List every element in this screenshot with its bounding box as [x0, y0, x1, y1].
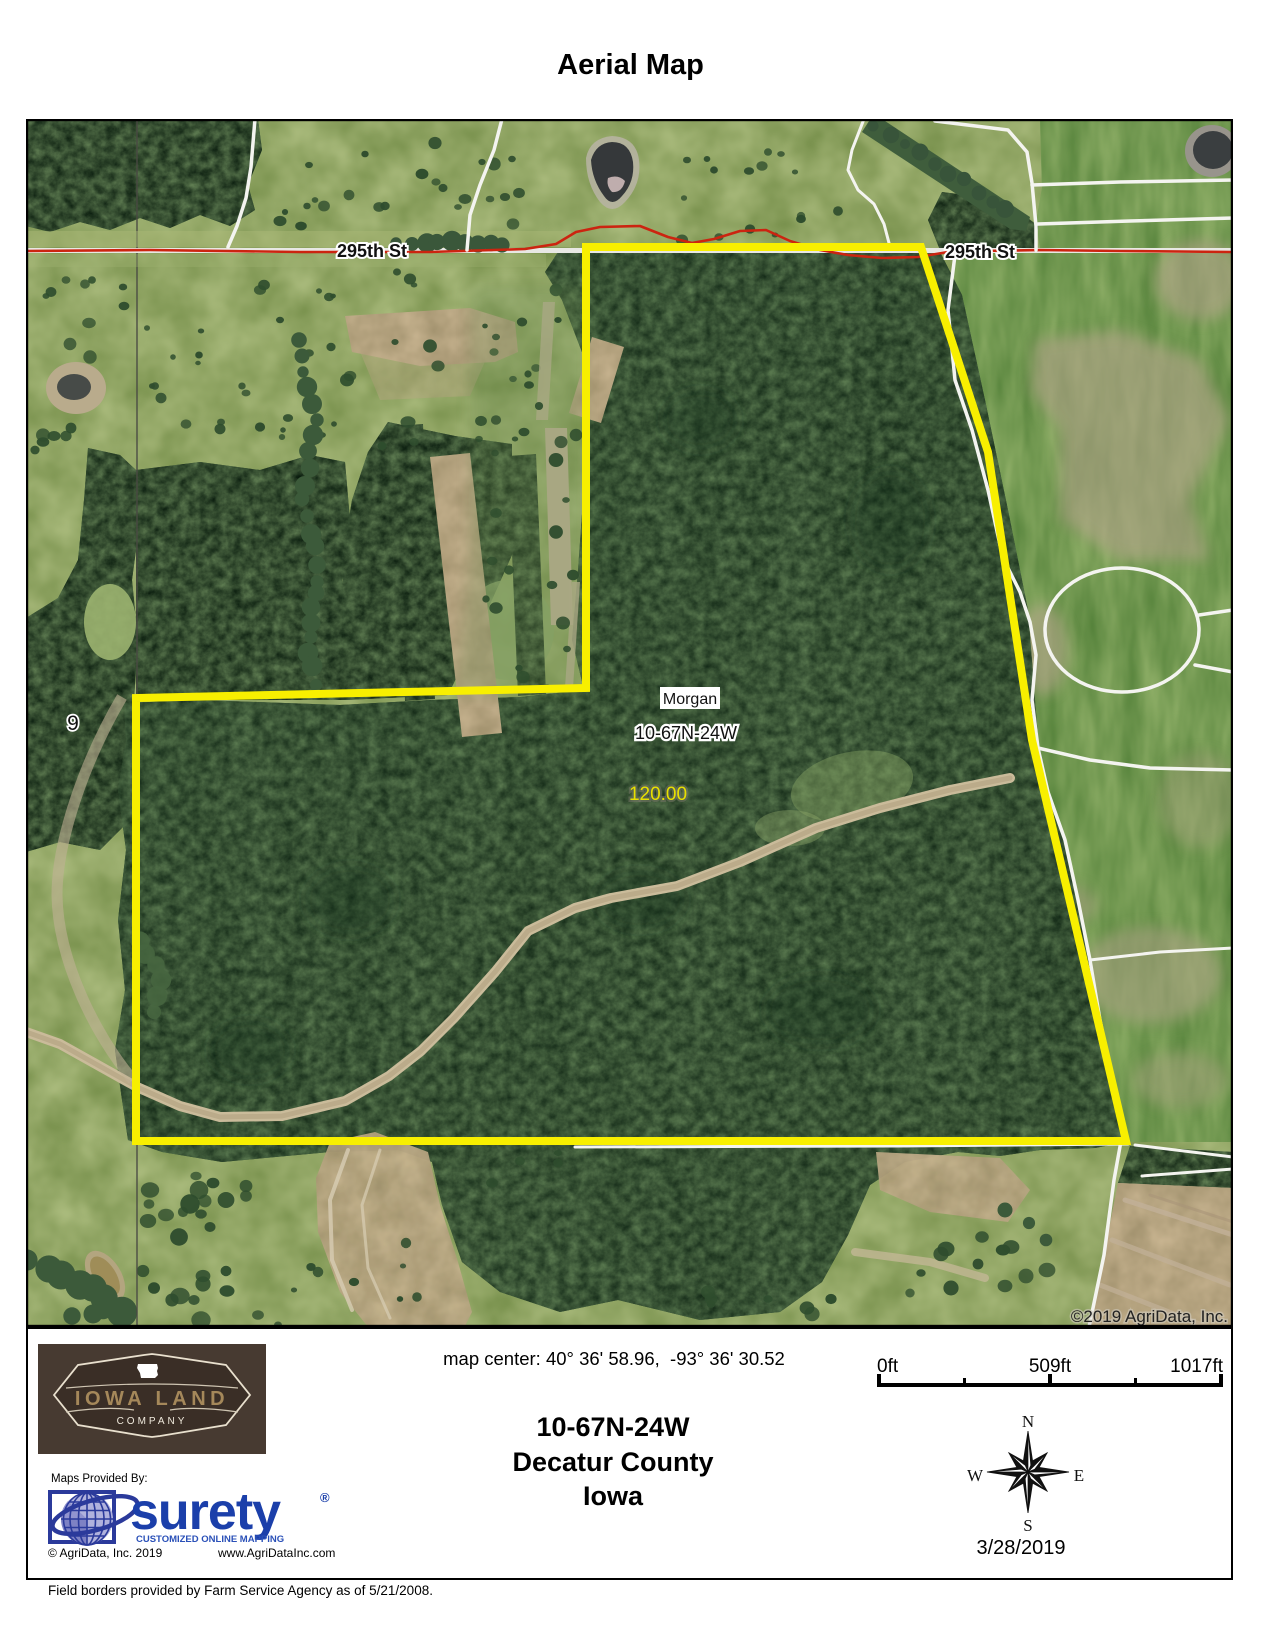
- svg-text:©2019 AgriData, Inc.: ©2019 AgriData, Inc.: [1071, 1307, 1228, 1326]
- svg-text:IOWA LAND: IOWA LAND: [75, 1388, 229, 1410]
- svg-text:1017ft: 1017ft: [1170, 1356, 1224, 1377]
- svg-text:E: E: [1074, 1466, 1084, 1485]
- svg-text:0ft: 0ft: [877, 1356, 899, 1377]
- svg-text:Morgan: Morgan: [663, 691, 717, 708]
- svg-text:W: W: [967, 1466, 984, 1485]
- svg-text:9: 9: [67, 712, 79, 735]
- svg-text:295th St: 295th St: [945, 242, 1015, 262]
- svg-text:N: N: [1022, 1412, 1034, 1431]
- svg-text:295th St: 295th St: [337, 241, 407, 261]
- svg-text:S: S: [1023, 1516, 1032, 1535]
- svg-text:10-67N-24W: 10-67N-24W: [635, 723, 737, 743]
- svg-text:509ft: 509ft: [1029, 1356, 1072, 1377]
- svg-text:120.00: 120.00: [629, 784, 687, 805]
